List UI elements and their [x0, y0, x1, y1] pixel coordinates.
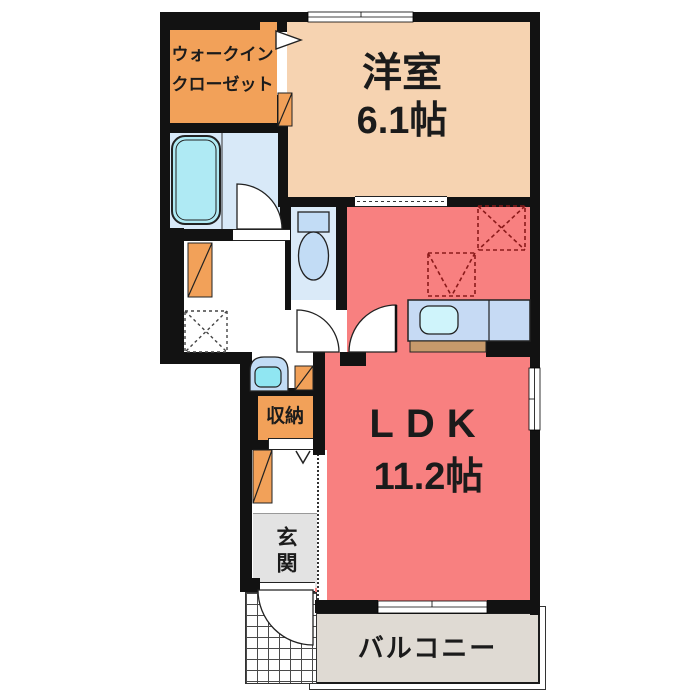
- wall-under-counter: [486, 341, 530, 357]
- entrance-label: 玄関: [274, 520, 296, 584]
- hallway-under-toilet: [285, 310, 347, 352]
- wall-door-stop: [340, 352, 366, 366]
- step-edge-strip: [317, 450, 327, 600]
- western-ldk-sliding-door: [355, 196, 447, 207]
- washer-nook-floor: [184, 303, 242, 352]
- porch-tiles: [245, 592, 317, 684]
- wall-bath-western: [278, 133, 288, 207]
- wall-western-bottom-right: [447, 197, 540, 207]
- wall-entrance-stub: [240, 578, 260, 592]
- ldk-size: 11.2帖: [327, 458, 530, 498]
- wall-hall-bottom: [160, 352, 252, 364]
- bath-door-band: [233, 229, 290, 241]
- storage-label: 収納: [252, 407, 318, 427]
- western-room-size: 6.1帖: [287, 102, 517, 142]
- entrance-hall-floor: [252, 450, 317, 513]
- wall-closet-right-top: [277, 12, 287, 32]
- walk-in-closet-label-line2: クローゼット: [168, 76, 277, 94]
- wall-ldk-left: [313, 352, 325, 455]
- western-room-name: 洋室: [287, 52, 517, 94]
- ldk-name: LDK: [327, 403, 530, 445]
- wall-ldk-bottom-right: [487, 600, 540, 613]
- wall-western-bottom-left: [287, 197, 355, 207]
- wall-left-mass: [160, 228, 184, 354]
- bath-door-leaf: [188, 243, 212, 297]
- floor-plan: ウォークイン クローゼット 洋室 6.1帖 LDK 11.2帖 収納 玄関 バル…: [0, 0, 700, 700]
- wall-closet-bottom: [160, 123, 288, 133]
- bathroom-floor: [170, 133, 280, 229]
- wall-corridor-left: [240, 352, 252, 592]
- walk-in-closet-room: [168, 22, 277, 124]
- balcony-label: バルコニー: [315, 635, 540, 662]
- wall-ldk-bottom-left: [315, 600, 378, 613]
- walk-in-closet-label-line1: ウォークイン: [168, 46, 277, 64]
- storage-door-band: [268, 438, 317, 450]
- wall-top: [160, 12, 540, 22]
- wall-left-upper: [160, 12, 170, 230]
- wall-bath-bottom: [184, 229, 233, 241]
- wall-closet-step: [160, 22, 260, 30]
- toilet-room-floor: [291, 207, 336, 300]
- toilet-door-opening: [291, 300, 336, 310]
- wall-right: [530, 12, 540, 615]
- closet-door-opening: [277, 32, 287, 95]
